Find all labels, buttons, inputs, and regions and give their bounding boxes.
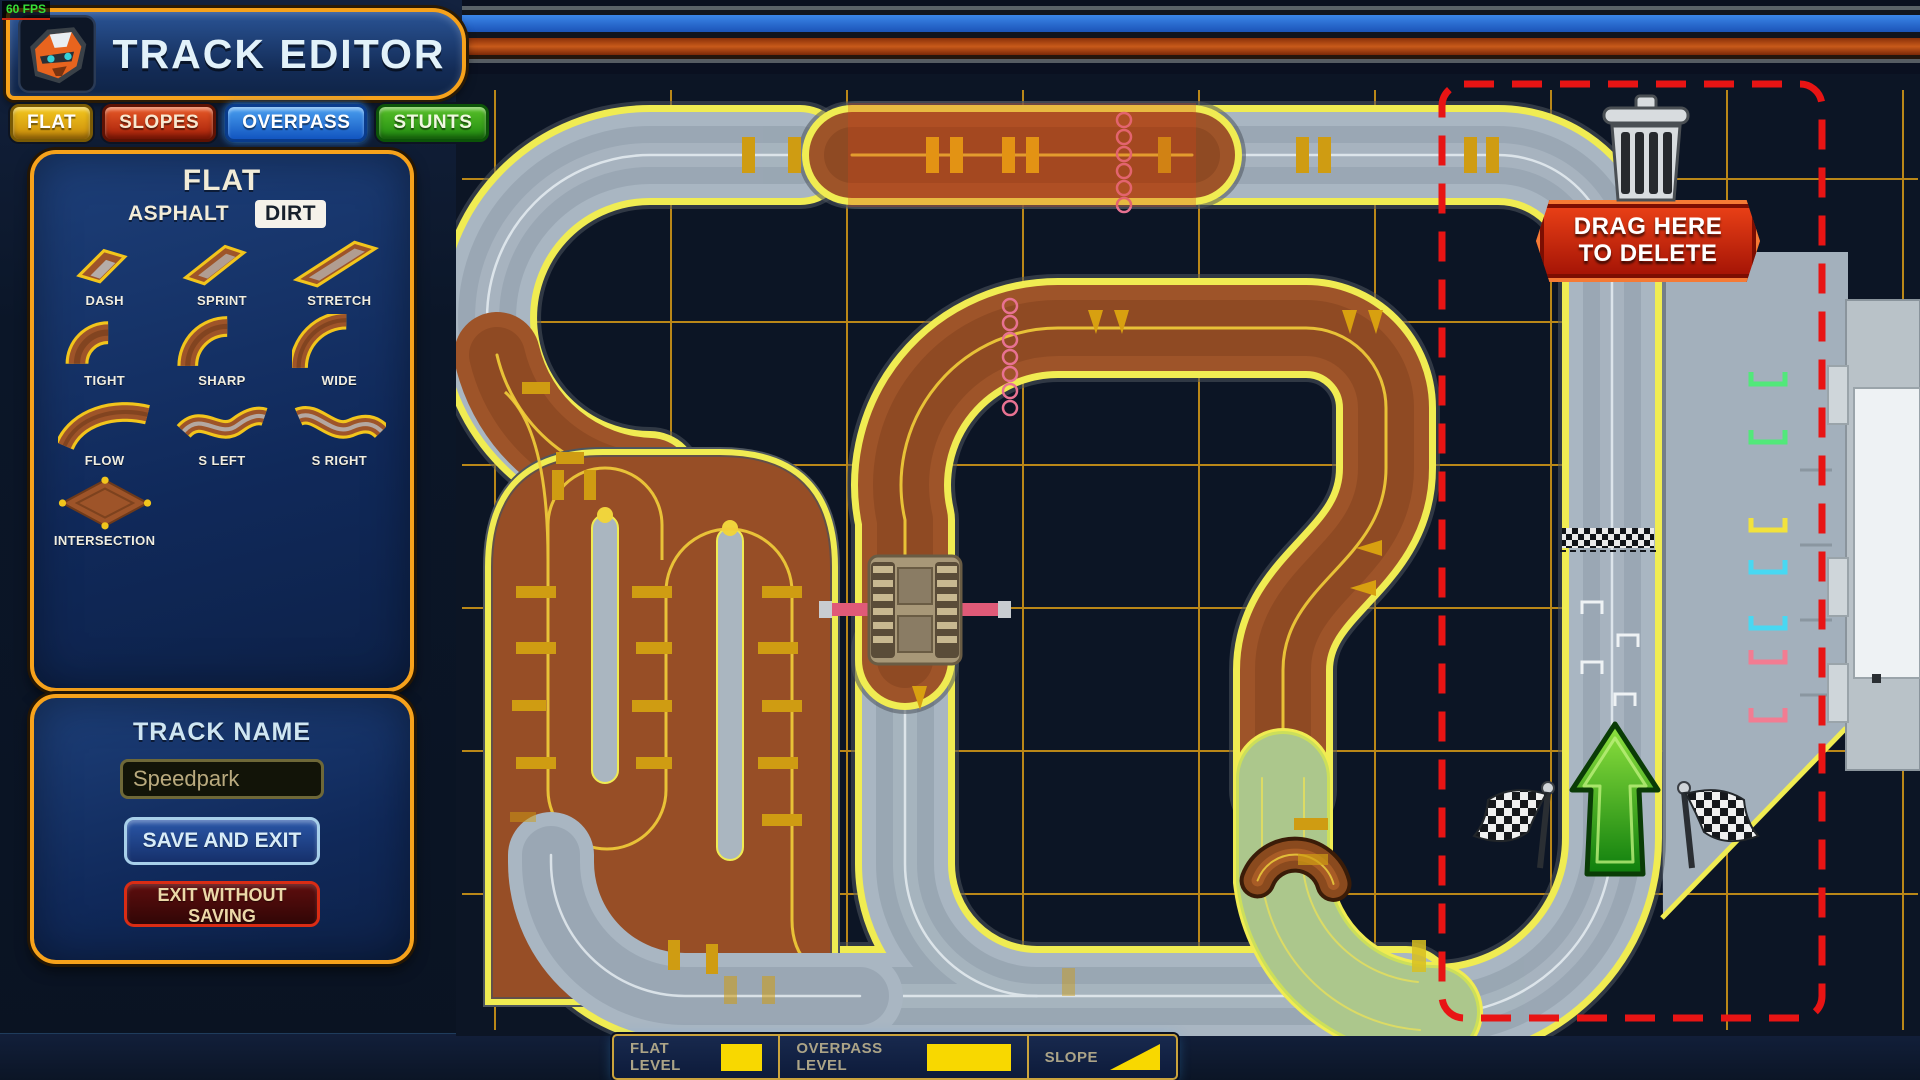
piece-flow[interactable]: FLOW [46,394,163,468]
piece-label: WIDE [322,373,358,388]
piece-label: SPRINT [197,293,247,308]
save-and-exit-button[interactable]: SAVE AND EXIT [124,817,320,865]
legend-swatch-square [721,1044,763,1071]
badger-logo-icon [18,15,96,93]
track-editor-screen: DRAG HERE TO DELETE TRACK EDITOR FLATSLO… [0,0,1920,1080]
track-name-input[interactable] [120,759,324,799]
legend-label: OVERPASS LEVEL [796,1040,915,1074]
piece-sharp[interactable]: SHARP [163,314,280,388]
sright-piece-icon [292,394,386,450]
piece-label: SHARP [198,373,246,388]
track-name-panel: TRACK NAME SAVE AND EXIT EXIT WITHOUT SA… [30,694,414,964]
piece-wide[interactable]: WIDE [281,314,398,388]
legend-label: FLAT LEVEL [630,1040,709,1074]
exit-without-saving-button[interactable]: EXIT WITHOUT SAVING [124,881,320,927]
piece-label: S RIGHT [312,453,368,468]
piece-stretch[interactable]: STRETCH [281,234,398,308]
selected-pieces-tint [848,103,1196,207]
category-tabs: FLATSLOPESOVERPASSSTUNTS [10,104,489,142]
level-legend-bar: FLAT LEVEL OVERPASS LEVEL SLOPE [612,1034,1178,1080]
delete-zone-line1: DRAG HERE [1574,214,1723,241]
delete-zone-line2: TO DELETE [1579,241,1718,268]
legend-overpass-level: OVERPASS LEVEL [778,1036,1026,1078]
tab-stunts[interactable]: STUNTS [376,104,489,142]
piece-sright[interactable]: S RIGHT [281,394,398,468]
piece-label: STRETCH [307,293,371,308]
trash-icon[interactable] [1596,94,1696,206]
piece-sleft[interactable]: S LEFT [163,394,280,468]
piece-label: DASH [85,293,123,308]
flow-piece-icon [58,394,152,450]
legend-flat-level: FLAT LEVEL [614,1036,778,1078]
tab-flat[interactable]: FLAT [10,104,93,142]
sleft-piece-icon [175,394,269,450]
pieces-grid: DASH SPRINT STRETCH TIGHT SHARP WIDE FLO… [34,228,410,548]
piece-label: TIGHT [84,373,125,388]
palette-title: FLAT [34,164,410,198]
wide-piece-icon [292,314,386,370]
sharp-piece-icon [175,314,269,370]
piece-label: FLOW [85,453,125,468]
title-panel: TRACK EDITOR [6,8,466,100]
legend-label: SLOPE [1045,1049,1098,1066]
legend-swatch-bar [927,1044,1011,1071]
tight-piece-icon [58,314,152,370]
piece-sprint[interactable]: SPRINT [163,234,280,308]
surface-option-dirt[interactable]: DIRT [255,200,326,228]
dash-piece-icon [58,234,152,290]
legend-swatch-triangle [1110,1044,1160,1070]
legend-slope: SLOPE [1027,1036,1176,1078]
tab-overpass[interactable]: OVERPASS [225,104,367,142]
piece-label: INTERSECTION [54,533,156,548]
intersection-piece-icon [58,474,152,530]
page-title: TRACK EDITOR [96,31,462,78]
piece-tight[interactable]: TIGHT [46,314,163,388]
piece-intersection[interactable]: INTERSECTION [46,474,163,548]
piece-label: S LEFT [198,453,245,468]
surface-toggle: ASPHALTDIRT [34,200,410,228]
surface-option-asphalt[interactable]: ASPHALT [118,200,239,228]
piece-palette-panel: FLAT ASPHALTDIRT DASH SPRINT STRETCH TIG… [30,150,414,692]
piece-dash[interactable]: DASH [46,234,163,308]
sprint-piece-icon [175,234,269,290]
tab-slopes[interactable]: SLOPES [102,104,216,142]
start-finish-line [1560,528,1656,551]
track-name-label: TRACK NAME [133,718,311,747]
stretch-piece-icon [292,234,386,290]
fps-counter: 60 FPS [2,1,50,20]
drag-here-to-delete-dropzone[interactable]: DRAG HERE TO DELETE [1536,200,1760,282]
